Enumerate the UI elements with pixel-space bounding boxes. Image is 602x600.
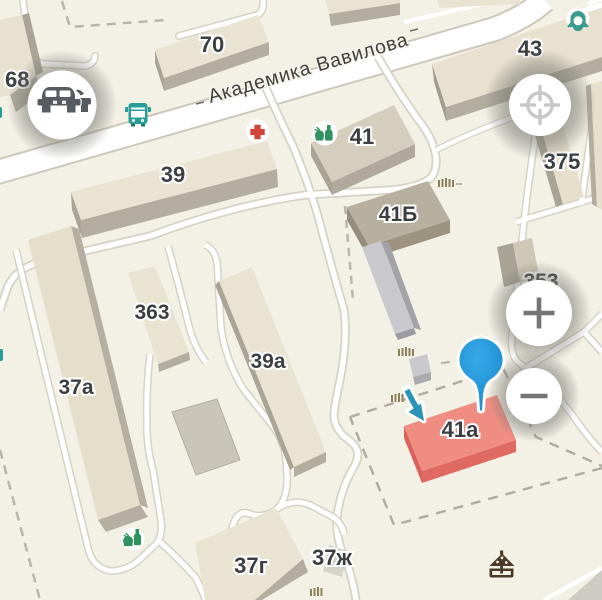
svg-text:39: 39 <box>161 162 185 187</box>
svg-text:37г: 37г <box>234 553 268 578</box>
svg-text:41а: 41а <box>442 417 479 442</box>
svg-text:39а: 39а <box>250 350 285 373</box>
svg-text:41Б: 41Б <box>379 203 417 226</box>
svg-text:70: 70 <box>200 32 224 57</box>
svg-text:37а: 37а <box>58 376 93 399</box>
svg-text:37ж: 37ж <box>312 545 352 570</box>
svg-text:363: 363 <box>134 301 169 324</box>
svg-text:41: 41 <box>350 124 374 149</box>
